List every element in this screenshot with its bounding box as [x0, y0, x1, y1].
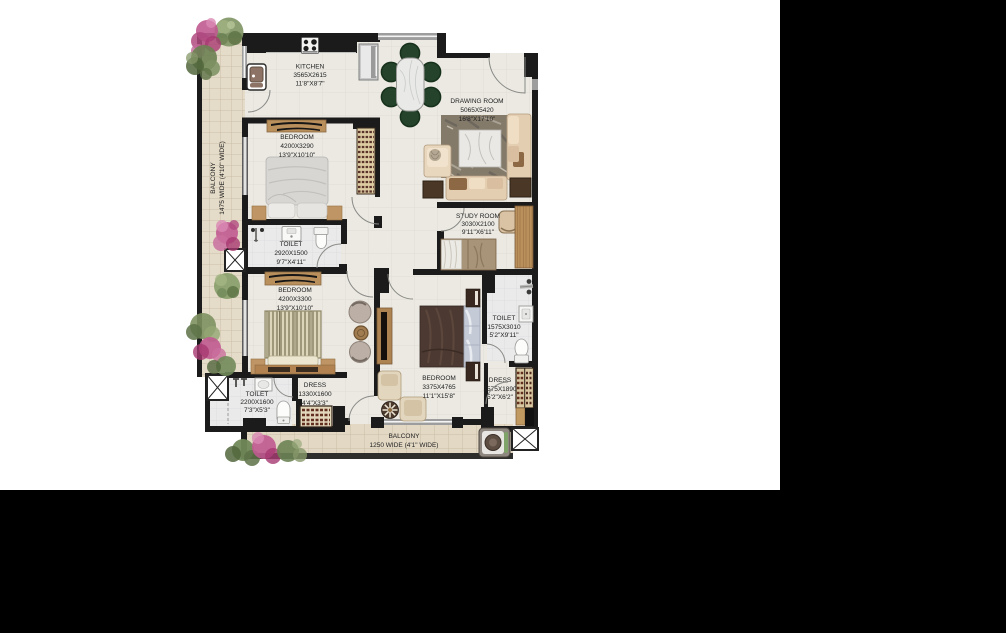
svg-text:5'2"X6'2": 5'2"X6'2" [487, 394, 514, 401]
svg-text:BALCONY: BALCONY [388, 433, 420, 440]
svg-text:3375X4765: 3375X4765 [422, 384, 456, 391]
svg-text:4200X3290: 4200X3290 [280, 143, 314, 150]
svg-text:3030X2100: 3030X2100 [461, 221, 495, 228]
svg-text:4'4"X3'3": 4'4"X3'3" [302, 400, 329, 407]
svg-text:13'9"X10'10": 13'9"X10'10" [277, 305, 314, 312]
svg-text:BEDROOM: BEDROOM [278, 287, 312, 294]
svg-text:DRAWING ROOM: DRAWING ROOM [450, 98, 503, 105]
svg-text:BALCONY: BALCONY [210, 162, 217, 194]
svg-text:7'3"X5'3": 7'3"X5'3" [244, 407, 271, 414]
svg-text:1475 WIDE (4'10" WIDE): 1475 WIDE (4'10" WIDE) [219, 141, 226, 215]
svg-text:5065X5420: 5065X5420 [460, 107, 494, 114]
svg-text:11'1"X15'8": 11'1"X15'8" [423, 393, 456, 400]
svg-text:BEDROOM: BEDROOM [422, 375, 456, 382]
svg-text:13'9"X10'10": 13'9"X10'10" [279, 152, 316, 159]
svg-text:TOILET: TOILET [280, 241, 303, 248]
svg-text:5'2"X9'11": 5'2"X9'11" [489, 332, 519, 339]
svg-text:1575X3010: 1575X3010 [487, 324, 521, 331]
svg-text:1575X1890: 1575X1890 [483, 386, 517, 393]
svg-text:TOILET: TOILET [246, 391, 269, 398]
svg-text:2200X1600: 2200X1600 [240, 399, 274, 406]
svg-text:BEDROOM: BEDROOM [280, 134, 314, 141]
svg-text:4200X3300: 4200X3300 [278, 296, 312, 303]
svg-text:1330X1600: 1330X1600 [298, 391, 332, 398]
svg-text:3565X2615: 3565X2615 [293, 72, 327, 79]
svg-text:1250 WIDE (4'1" WIDE): 1250 WIDE (4'1" WIDE) [370, 442, 439, 449]
svg-text:KITCHEN: KITCHEN [296, 64, 325, 71]
svg-text:9'7"X4'11": 9'7"X4'11" [276, 259, 306, 266]
svg-text:2920X1500: 2920X1500 [274, 250, 308, 257]
svg-text:TOILET: TOILET [493, 315, 516, 322]
svg-text:DRESS: DRESS [304, 382, 327, 389]
svg-text:16'8"X17'10": 16'8"X17'10" [459, 116, 496, 123]
svg-text:11'8"X8'7": 11'8"X8'7" [295, 81, 325, 88]
svg-text:9'11"X6'11": 9'11"X6'11" [462, 229, 495, 236]
